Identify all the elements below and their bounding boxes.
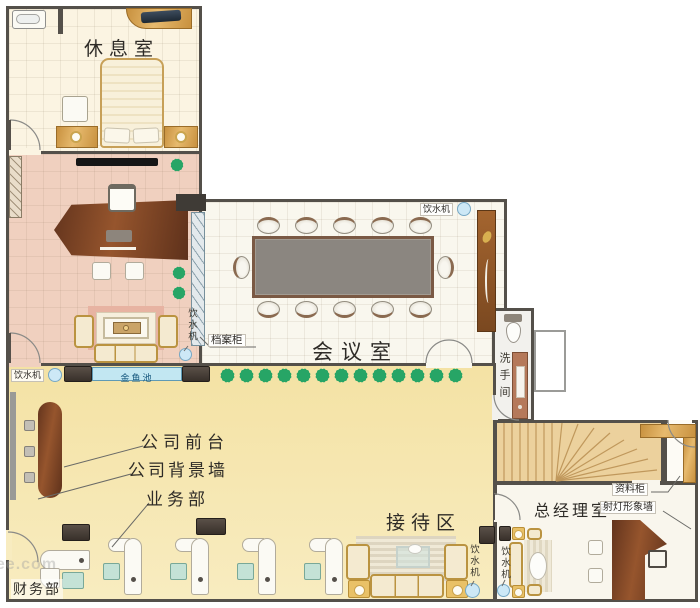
conference-chair — [257, 301, 280, 318]
conference-chair — [371, 217, 394, 234]
workstation-panel — [325, 538, 343, 595]
background-wall-strip — [10, 392, 16, 500]
decor-leaf — [481, 230, 493, 244]
keyboard-tray — [106, 230, 132, 242]
plant-icon — [315, 368, 330, 383]
gm-armchair — [527, 528, 542, 540]
reception-label: 接待区 — [386, 508, 461, 535]
workstation-chair — [304, 563, 321, 580]
water-dispenser-label: 饮水机 — [420, 203, 453, 216]
knob — [123, 325, 129, 331]
workstation-chair — [237, 563, 254, 580]
plant-icon — [334, 368, 349, 383]
conference-chair — [409, 217, 432, 234]
plant-icon — [172, 286, 186, 300]
washroom-label: 洗手间 — [496, 352, 512, 416]
plate — [408, 544, 422, 554]
toilet-tank — [504, 314, 522, 322]
gm-guest-chair — [588, 540, 603, 555]
plant-icon — [172, 266, 186, 280]
conference-chair — [257, 217, 280, 234]
conference-chair — [437, 256, 454, 279]
pillow — [133, 127, 160, 143]
conference-chair — [333, 301, 356, 318]
gm-chair — [648, 550, 667, 568]
stairs — [494, 420, 664, 484]
desk-dot — [332, 577, 337, 582]
coffee-table — [103, 317, 149, 339]
shaft-outline — [534, 330, 566, 392]
door-gap-gm — [494, 495, 500, 522]
tv-panel — [76, 158, 158, 166]
front-desk — [38, 402, 62, 498]
nightstand-left — [56, 126, 98, 148]
plant-icon — [391, 368, 406, 383]
fish-pond-label: 金鱼池 — [120, 373, 153, 383]
shower-basin — [16, 14, 40, 24]
wall-stub — [58, 6, 63, 34]
front-desk-chair — [24, 420, 35, 431]
gm-guest-chair — [588, 568, 603, 583]
plant-icon — [448, 368, 463, 383]
plant-icon — [353, 368, 368, 383]
drain-dot — [518, 405, 522, 409]
desk-front-line — [100, 247, 136, 250]
planter-box — [64, 366, 92, 382]
workstation-panel — [191, 538, 209, 595]
lamp-table — [512, 585, 525, 598]
desk-dot — [79, 558, 84, 563]
water-dispenser-icon — [48, 368, 62, 382]
lamp-table — [348, 580, 370, 598]
single-sofa — [444, 544, 468, 580]
conference-chair — [233, 256, 250, 279]
vanity-cabinet — [512, 352, 528, 419]
plant-icon — [296, 368, 311, 383]
door-gap-meeting — [426, 361, 472, 368]
plant-icon — [277, 368, 292, 383]
conference-chair — [333, 217, 356, 234]
water-dispenser-label: 饮水机 — [184, 308, 198, 350]
finance-dept-label: 财务部 — [11, 579, 63, 599]
watermark: see.com — [0, 556, 57, 574]
side-table — [62, 96, 88, 122]
gm-armchair — [527, 584, 542, 596]
desk-dot — [265, 577, 270, 582]
workstation-chair — [103, 563, 120, 580]
cabinet — [196, 518, 226, 535]
lounge-label: 休息室 — [84, 34, 159, 61]
lamp-dot — [175, 131, 187, 143]
conference-table — [252, 236, 434, 298]
workstation-panel — [258, 538, 276, 595]
water-dispenser-label: 饮水机 — [11, 369, 44, 382]
fish-pond: 金鱼池 — [92, 367, 182, 381]
armchair — [74, 315, 94, 348]
water-dispenser-label: 饮水机 — [497, 546, 511, 584]
single-sofa — [346, 544, 370, 580]
corner-cabinet-side — [683, 437, 696, 483]
lamp-table — [512, 527, 525, 540]
door-gap-exec — [9, 360, 41, 367]
lamp-dot — [70, 131, 82, 143]
meeting-label: 会议室 — [312, 336, 399, 366]
gm-office-label: 总经理室 — [534, 497, 610, 521]
plant-icon — [220, 368, 235, 383]
office-floor-plan: 休息室 饮水机 档案柜 饮水机 会议室 洗 — [0, 0, 700, 608]
bookshelf — [9, 156, 22, 218]
conference-chair — [295, 301, 318, 318]
wall-header — [176, 194, 206, 211]
cabinet — [62, 524, 90, 541]
cabinet — [479, 526, 495, 544]
front-desk-chair — [24, 446, 35, 457]
shower-tray — [12, 10, 46, 29]
corner-cabinet-top — [640, 424, 696, 438]
guest-chair — [125, 262, 144, 280]
planter-box — [182, 366, 210, 382]
water-dispenser-icon — [457, 202, 471, 216]
data-cabinet-label: 资料柜 — [612, 483, 648, 496]
door-gap-lounge — [9, 148, 41, 155]
plant-icon — [372, 368, 387, 383]
desk-dot — [131, 577, 136, 582]
sink — [516, 366, 525, 398]
gm-oval-table — [529, 552, 547, 580]
front-desk-label: 公司前台 — [141, 428, 229, 453]
desk-dot — [198, 577, 203, 582]
conference-chair — [409, 301, 432, 318]
guest-chair — [92, 262, 111, 280]
feature-wall-label: 射灯形象墙 — [600, 501, 656, 514]
plant-icon — [410, 368, 425, 383]
plant-icon — [170, 158, 184, 172]
workstation-panel — [124, 538, 142, 595]
water-dispenser-label: 饮水机 — [466, 544, 480, 584]
business-dept-label: 业务部 — [146, 485, 209, 510]
display-cabinet — [477, 210, 496, 332]
background-wall-label: 公司背景墙 — [128, 456, 228, 481]
plant-icon — [239, 368, 254, 383]
armchair — [158, 315, 178, 348]
sofa — [94, 344, 158, 363]
conference-chair — [295, 217, 318, 234]
water-dispenser-icon — [497, 584, 510, 597]
long-sofa — [370, 574, 444, 598]
workstation-chair — [170, 563, 187, 580]
conference-chair — [371, 301, 394, 318]
decor-curve — [485, 259, 492, 303]
file-cabinet-label: 档案柜 — [208, 334, 246, 347]
cabinet — [499, 526, 511, 541]
plant-icon — [429, 368, 444, 383]
nightstand-right — [164, 126, 198, 148]
water-dispenser-icon — [465, 583, 480, 598]
plant-icon — [258, 368, 273, 383]
gm-long-sofa — [509, 542, 523, 588]
front-desk-chair — [24, 472, 35, 483]
glass-table — [396, 546, 430, 568]
finance-chair — [62, 572, 84, 589]
executive-chair — [108, 184, 136, 212]
pillow — [104, 127, 131, 143]
